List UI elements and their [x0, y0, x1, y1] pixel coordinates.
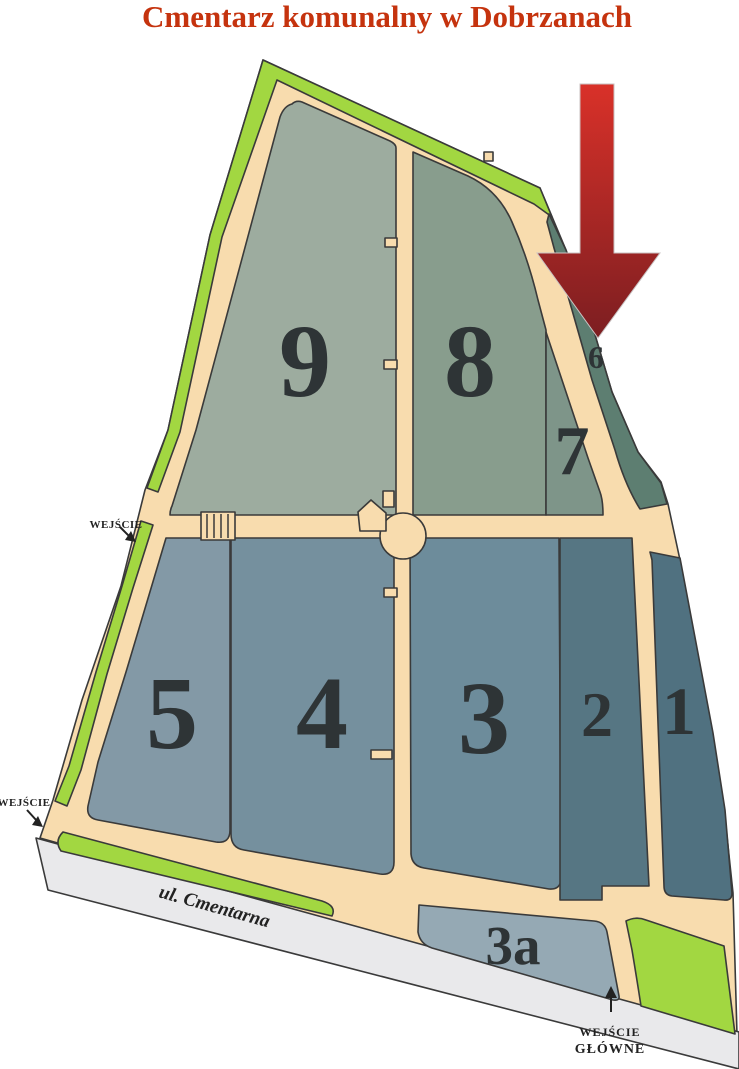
section-4-label: 4 [296, 656, 348, 771]
entrance-left-label: WEJŚCIE [89, 519, 142, 531]
section-7-label: 7 [555, 413, 590, 490]
section-2-label: 2 [581, 679, 613, 750]
main-entrance-label-line2: GŁÓWNE [575, 1040, 646, 1057]
path-stub [385, 238, 397, 247]
roundabout [380, 513, 426, 559]
cemetery-map-page: Cmentarz komunalny w Dobrzanach [0, 0, 739, 1069]
path-stub [384, 588, 397, 597]
cemetery-map: Cmentarz komunalny w Dobrzanach [0, 0, 739, 1069]
section-9-label: 9 [279, 304, 331, 419]
path-stub [384, 360, 397, 369]
section-5-label: 5 [146, 656, 198, 771]
main-entrance-label-line1: WEJŚCIE [579, 1025, 640, 1039]
page-title: Cmentarz komunalny w Dobrzanach [142, 0, 632, 34]
section-6-label: 6 [588, 339, 604, 375]
section-3a-label: 3a [486, 915, 541, 976]
section-3-label: 3 [458, 661, 510, 776]
entrance-bottomleft-arrow-icon [27, 810, 43, 827]
path-stub [484, 152, 493, 161]
section-8-label: 8 [444, 304, 496, 419]
gate-structure [201, 512, 235, 540]
entrance-bottomleft-label: WEJŚCIE [0, 797, 51, 809]
path-stub [383, 491, 394, 507]
section-1-label: 1 [662, 673, 696, 749]
path-stub [371, 750, 392, 759]
